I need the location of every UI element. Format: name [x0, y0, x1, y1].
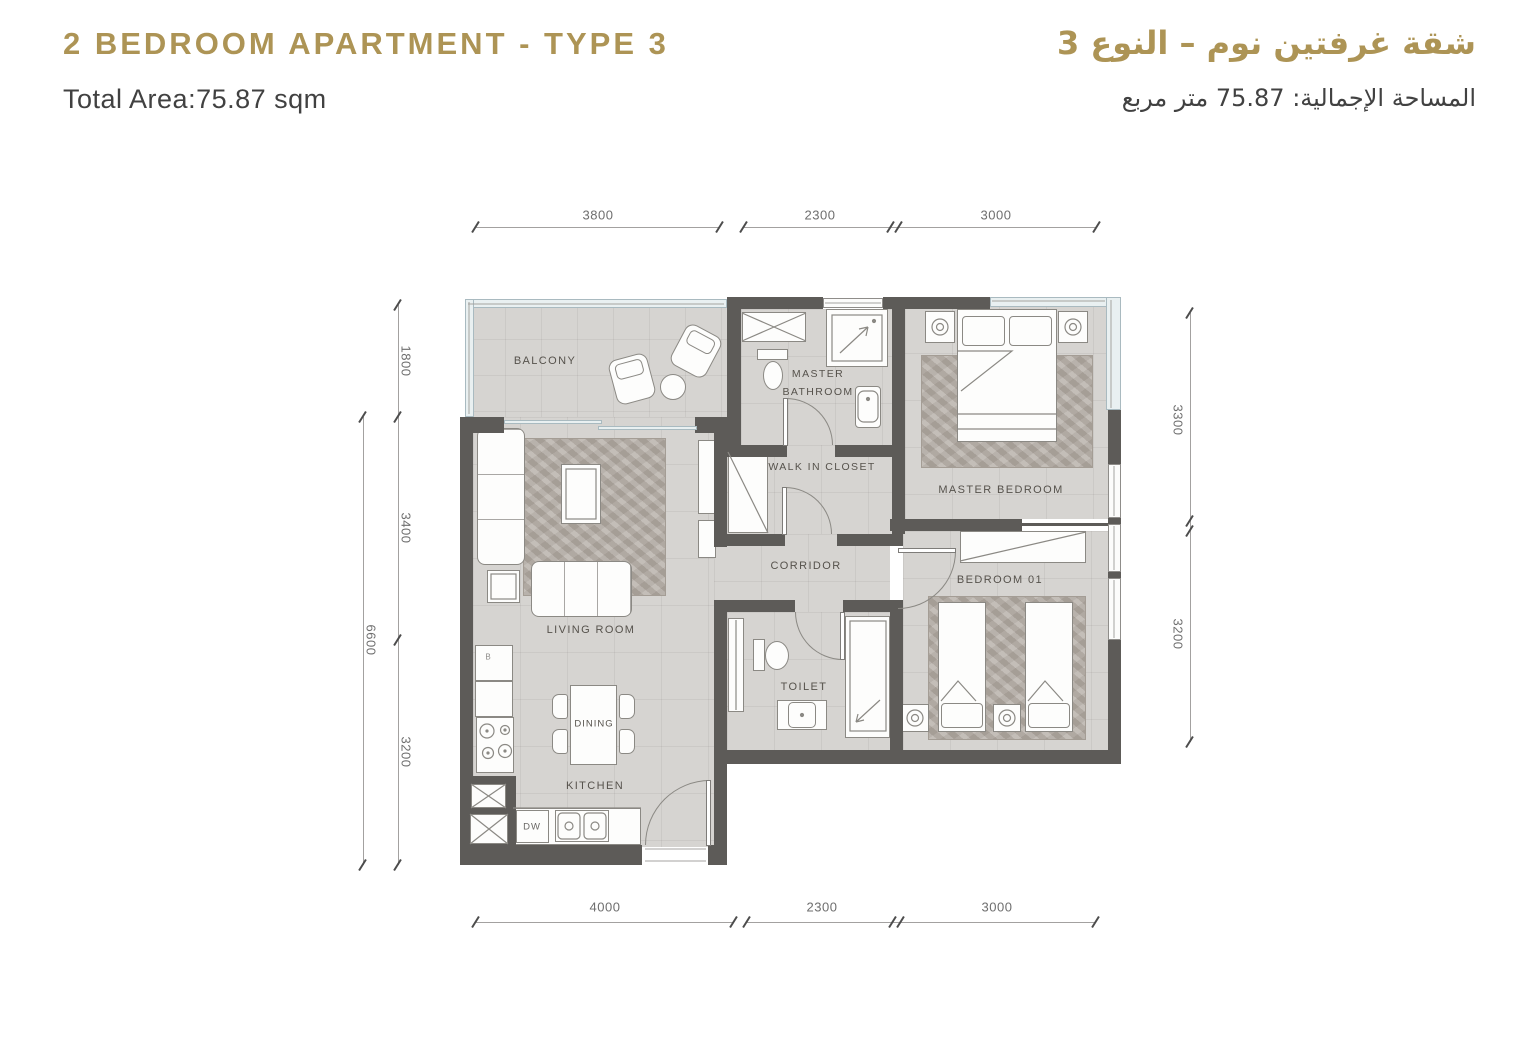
- room-label-toilet: TOILET: [781, 681, 828, 693]
- nightstand: [925, 311, 955, 343]
- closet-door-leaf: [782, 487, 787, 535]
- entrance-door-leaf: [706, 780, 711, 846]
- balcony-glazing-top: [465, 299, 727, 308]
- wall-bottom-kitchen: [460, 845, 642, 865]
- dining-chair: [619, 729, 635, 754]
- bedroom-01-door-leaf: [898, 548, 956, 553]
- shower: [826, 309, 888, 367]
- floor-plan-page: 2 BEDROOM APARTMENT - TYPE 3 Total Area:…: [0, 0, 1534, 1048]
- dimension-tick: [358, 859, 367, 871]
- pillow: [941, 703, 983, 728]
- dimension-label: 3000: [981, 208, 1012, 223]
- room-label-bedroom-01: BEDROOM 01: [957, 574, 1043, 586]
- pillow: [1028, 703, 1070, 728]
- dimension-line: [476, 922, 734, 923]
- toilet-tank: [757, 349, 788, 360]
- dining-chair: [552, 694, 568, 719]
- wall-living-closet: [714, 433, 727, 547]
- wall-segment: [714, 600, 795, 612]
- wall-toilet-left: [714, 600, 727, 865]
- shaft-box: [470, 814, 508, 844]
- wall-segment: [843, 600, 903, 612]
- bedroom-glazing-right: [1106, 297, 1121, 410]
- wall-pier: [460, 417, 504, 433]
- nightstand: [901, 704, 929, 732]
- wall-corridor-bedroom: [890, 609, 903, 764]
- dimension-label: 3300: [1171, 405, 1186, 436]
- room-label-master-bedroom: MASTER BEDROOM: [938, 484, 1063, 496]
- balcony-sliding-door: [504, 420, 602, 424]
- dimension-line: [398, 305, 399, 865]
- wall-thin-line: [1022, 523, 1108, 526]
- room-label-kitchen: KITCHEN: [566, 780, 624, 792]
- fridge: [475, 645, 513, 681]
- stove: [476, 717, 514, 773]
- wall-bedrooms-divider: [890, 519, 1022, 531]
- window: [1108, 524, 1121, 572]
- toilet-bowl: [765, 641, 789, 670]
- wall-balcony-bathroom: [727, 297, 741, 445]
- dimension-label: 4000: [590, 900, 621, 915]
- dimension-line: [476, 227, 720, 228]
- dimension-line: [747, 922, 1096, 923]
- dimension-tick: [1185, 736, 1194, 748]
- side-table: [487, 570, 520, 603]
- closet-wardrobe: [728, 452, 768, 533]
- kitchen-counter: [475, 681, 513, 717]
- window: [1108, 578, 1121, 640]
- toilet-shower: [845, 616, 890, 738]
- wall-segment: [1108, 640, 1121, 764]
- sofa-vertical: [477, 428, 525, 565]
- linen-cabinet: [742, 312, 806, 342]
- dimension-label: 3200: [1171, 619, 1186, 650]
- toilet-door-leaf: [840, 612, 845, 660]
- kitchen-sink: [555, 810, 609, 842]
- balcony-side-table: [660, 374, 686, 400]
- balcony-sliding-door: [598, 426, 697, 430]
- dining-chair: [619, 694, 635, 719]
- room-label-dining: DINING: [574, 719, 613, 730]
- dimension-label: 2300: [805, 208, 836, 223]
- dimension-label: 3400: [399, 513, 414, 544]
- wall-segment: [727, 297, 823, 309]
- page-title: 2 BEDROOM APARTMENT - TYPE 3: [63, 26, 669, 62]
- dining-chair: [552, 729, 568, 754]
- room-label-master-bathroom: MASTER BATHROOM: [772, 366, 864, 402]
- fridge-mark: B: [485, 653, 490, 662]
- window: [1108, 464, 1121, 518]
- dishwasher-label: DW: [523, 822, 541, 833]
- room-label-corridor: CORRIDOR: [770, 560, 841, 572]
- wall-segment: [837, 534, 903, 546]
- toilet-cabinet: [728, 618, 744, 712]
- nightstand: [1058, 311, 1088, 343]
- wardrobe: [960, 531, 1086, 563]
- bedroom-glazing-top: [990, 297, 1108, 307]
- dimension-label: 2300: [807, 900, 838, 915]
- toilet-sink-basin: [788, 702, 816, 728]
- wall-segment: [727, 534, 785, 546]
- wall-pier: [695, 417, 727, 433]
- total-area-label-arabic: المساحة الإجمالية: 75.87 متر مربع: [1122, 84, 1476, 112]
- coffee-table: [561, 464, 601, 524]
- dimension-line: [744, 227, 1097, 228]
- bathroom-door-leaf: [783, 398, 788, 446]
- dimension-label: 1800: [399, 346, 414, 377]
- nightstand: [993, 704, 1021, 732]
- pillow: [962, 316, 1005, 346]
- toilet-tank: [753, 639, 765, 671]
- dimension-label: 3200: [399, 737, 414, 768]
- page-title-arabic: شقة غرفتين نوم – النوع 3: [1057, 24, 1476, 62]
- shaft-box: [471, 784, 506, 808]
- wall-segment: [883, 297, 990, 309]
- chair-cushion: [614, 358, 645, 381]
- wall-pier-entrance: [708, 845, 727, 865]
- room-label-balcony: BALCONY: [514, 355, 576, 367]
- room-label-living-room: LIVING ROOM: [547, 624, 636, 636]
- wall-segment: [1108, 410, 1121, 464]
- wall-bathroom-bedroom: [892, 309, 905, 534]
- sofa-horizontal: [531, 561, 632, 617]
- total-area-label: Total Area:75.87 sqm: [63, 84, 327, 115]
- dimension-tick: [393, 859, 402, 871]
- dimension-label: 6600: [364, 625, 379, 656]
- dimension-label: 3800: [583, 208, 614, 223]
- wall-bottom-right: [714, 750, 1121, 764]
- chair-cushion: [685, 329, 717, 356]
- bathroom-window: [823, 298, 883, 308]
- dimension-label: 3000: [982, 900, 1013, 915]
- pillow: [1009, 316, 1052, 346]
- wall-segment: [727, 445, 787, 457]
- entrance-threshold: [642, 847, 708, 863]
- balcony-glazing-left: [465, 299, 474, 417]
- room-label-walk-in-closet: WALK IN CLOSET: [768, 461, 875, 473]
